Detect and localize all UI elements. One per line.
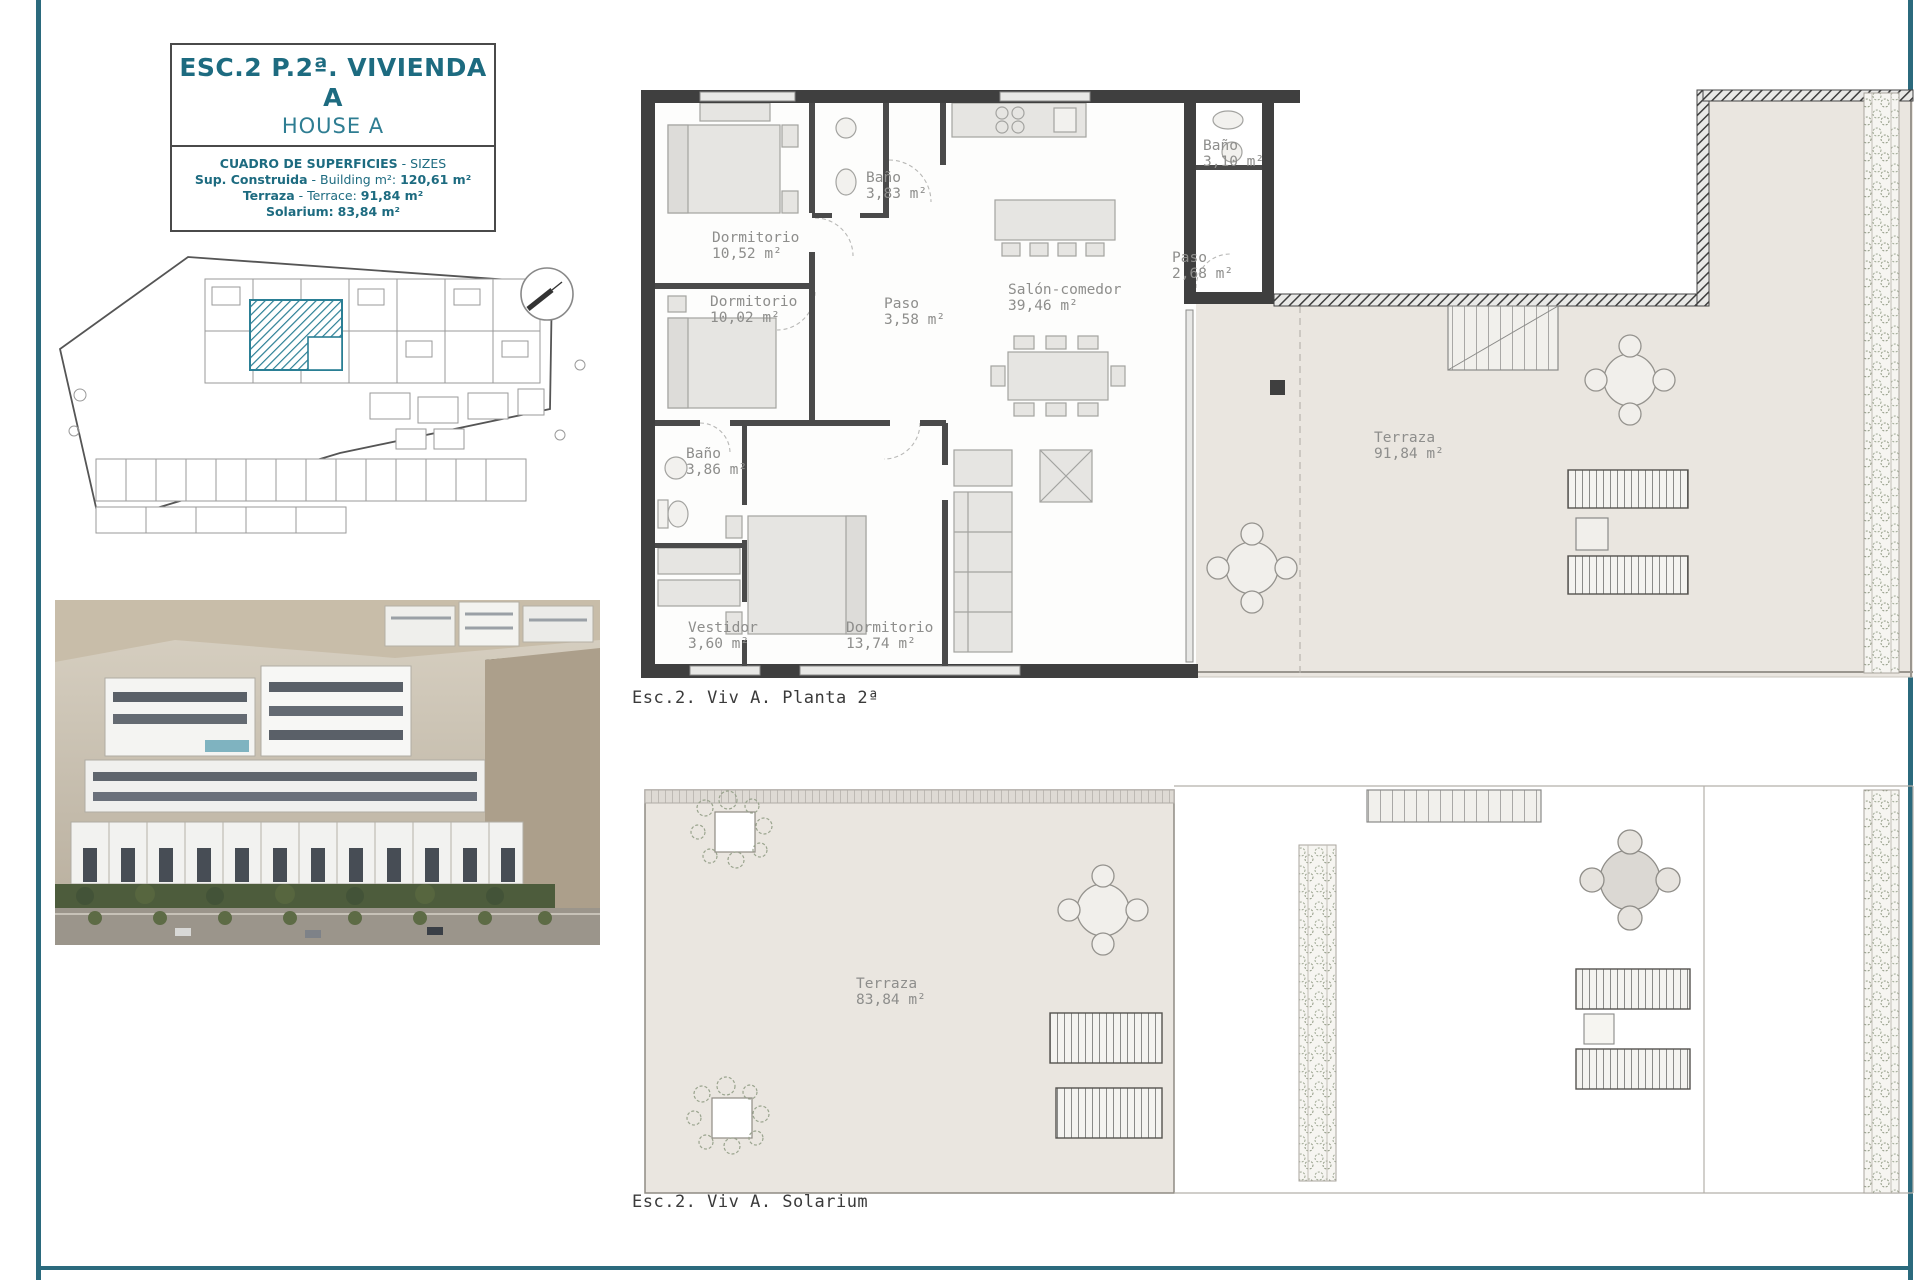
- room-label-terraza: Terraza91,84 m²: [1374, 430, 1444, 462]
- sheet-border-left: [36, 0, 41, 1280]
- surface-row-solarium: Solarium: 83,84 m²: [176, 204, 490, 220]
- site-plan: [40, 245, 640, 585]
- aerial-townhouses: [71, 822, 523, 884]
- room-label-dormitorio-1: Dormitorio10,52 m²: [712, 230, 799, 262]
- room-label-dormitorio-2: Dormitorio10,02 m²: [710, 294, 797, 326]
- solarium-planter-strip: [1864, 790, 1899, 1193]
- room-label-bano-3: Baño3,86 m²: [686, 446, 747, 478]
- room-label-vestidor: Vestidor3,60 m²: [688, 620, 758, 652]
- surface-row-built: Sup. Construida - Building m²: 120,61 m²: [176, 172, 490, 188]
- solarium-table-shaded: [1580, 830, 1680, 930]
- caption-solarium: Esc.2. Viv A. Solarium: [632, 1192, 868, 1212]
- room-label-bano-2: Baño3,10 m²: [1203, 138, 1264, 170]
- sheet-title: ESC.2 P.2ª. VIVIENDA A: [176, 53, 490, 113]
- plan-sheet: ESC.2 P.2ª. VIVIENDA A HOUSE A CUADRO DE…: [0, 0, 1920, 1280]
- surface-table: CUADRO DE SUPERFICIES - SIZES Sup. Const…: [172, 147, 494, 230]
- title-panel: ESC.2 P.2ª. VIVIENDA A HOUSE A CUADRO DE…: [170, 43, 496, 232]
- highlighted-unit: [250, 300, 342, 370]
- surface-row-terrace: Terraza - Terrace: 91,84 m²: [176, 188, 490, 204]
- title-panel-header: ESC.2 P.2ª. VIVIENDA A HOUSE A: [172, 45, 494, 147]
- sheet-subtitle: HOUSE A: [176, 113, 490, 139]
- floor-plan-planta2: [633, 84, 1920, 684]
- planter-strip: [1864, 93, 1899, 673]
- aerial-photo: [55, 600, 600, 945]
- room-label-dormitorio-3: Dormitorio13,74 m²: [846, 620, 933, 652]
- sheet-border-bottom: [36, 1266, 1913, 1270]
- room-label-paso-1: Paso3,58 m²: [884, 296, 945, 328]
- room-label-salon: Salón-comedor39,46 m²: [1008, 282, 1122, 314]
- surface-table-heading: CUADRO DE SUPERFICIES - SIZES: [176, 156, 490, 172]
- room-label-solarium-terraza: Terraza83,84 m²: [856, 976, 926, 1008]
- solarium-planter-column: [1299, 845, 1336, 1181]
- caption-planta2: Esc.2. Viv A. Planta 2ª: [632, 688, 879, 708]
- site-houses-row: [69, 360, 585, 533]
- solarium-stairs: [1367, 790, 1541, 822]
- terrace-area: [1189, 90, 1913, 677]
- solarium-plan: [633, 780, 1920, 1200]
- aerial-hedge: [55, 884, 555, 908]
- room-label-paso-2: Paso2,68 m²: [1172, 250, 1233, 282]
- north-arrow-icon: [521, 268, 573, 320]
- stairs: [1448, 306, 1558, 370]
- aerial-road: [55, 908, 600, 945]
- solarium-right-area: [1174, 786, 1913, 1193]
- room-label-bano-1: Baño3,83 m²: [866, 170, 927, 202]
